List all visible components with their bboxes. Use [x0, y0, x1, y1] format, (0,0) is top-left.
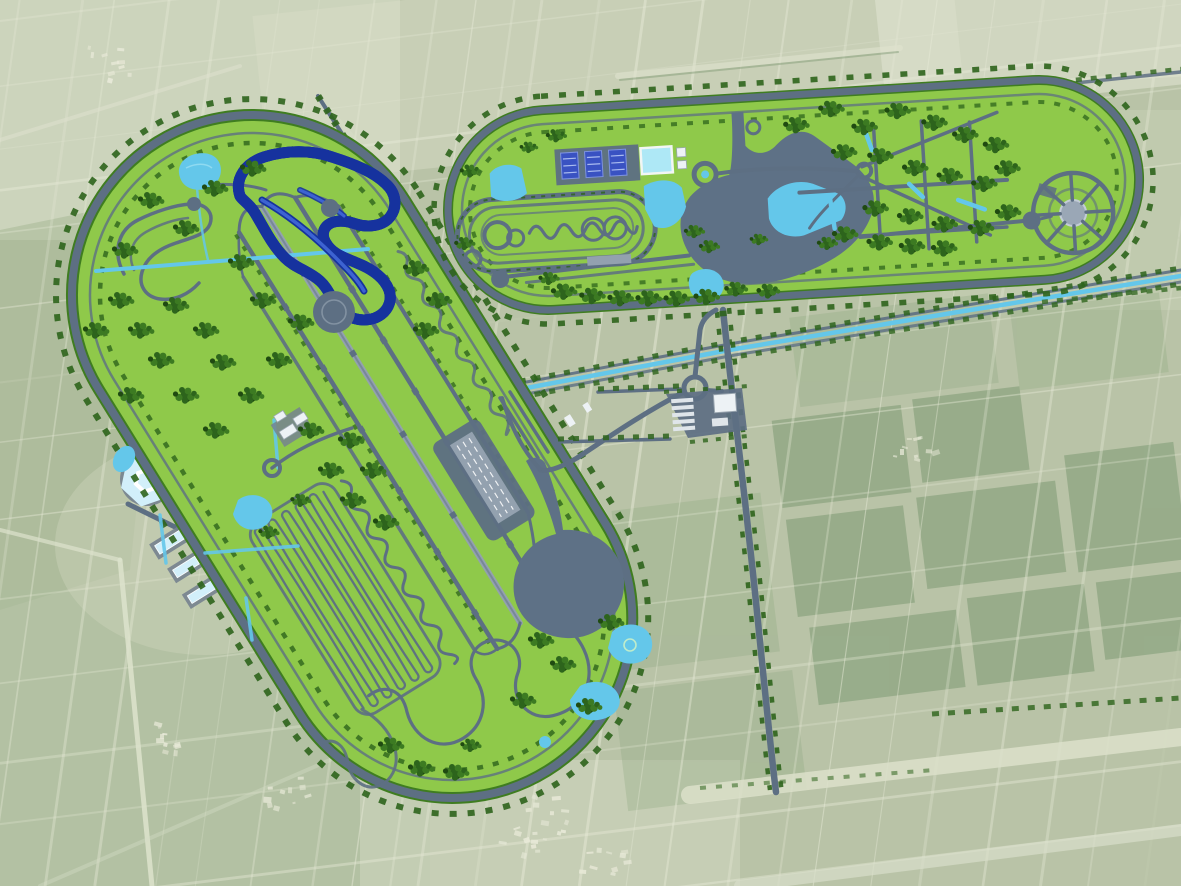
village-speck	[532, 832, 537, 835]
water-basin	[640, 146, 673, 174]
masterplan-canvas: Surrounding farmland with field grid, ir…	[0, 0, 1181, 886]
aerial-masterplan: Surrounding farmland with field grid, ir…	[0, 0, 1181, 886]
circular-pad	[321, 199, 339, 217]
village-speck	[907, 438, 912, 440]
village-speck	[128, 73, 132, 77]
village-speck	[552, 796, 561, 801]
skid-pad	[313, 291, 355, 333]
village-speck	[268, 787, 273, 790]
village-speck	[926, 449, 932, 453]
village-speck	[620, 853, 627, 859]
pond-small	[539, 736, 551, 748]
village-speck	[531, 840, 538, 844]
village-speck	[267, 802, 273, 808]
village-speck	[579, 870, 586, 874]
circular-pad	[187, 197, 201, 211]
pond	[489, 164, 527, 202]
village-speck	[597, 848, 602, 853]
gate-building	[713, 393, 736, 412]
small-building	[676, 147, 686, 157]
village-speck	[900, 449, 904, 455]
village-speck	[550, 811, 554, 815]
village-speck	[525, 808, 531, 813]
small-building	[677, 160, 686, 169]
village-speck	[263, 797, 271, 804]
pond	[608, 625, 652, 664]
village-speck	[288, 787, 292, 793]
village-speck	[535, 850, 540, 853]
village-speck	[298, 777, 304, 780]
village-speck	[533, 802, 539, 807]
village-speck	[117, 48, 124, 52]
village-speck	[299, 785, 305, 791]
village-speck	[163, 742, 168, 747]
village-speck	[173, 750, 178, 756]
